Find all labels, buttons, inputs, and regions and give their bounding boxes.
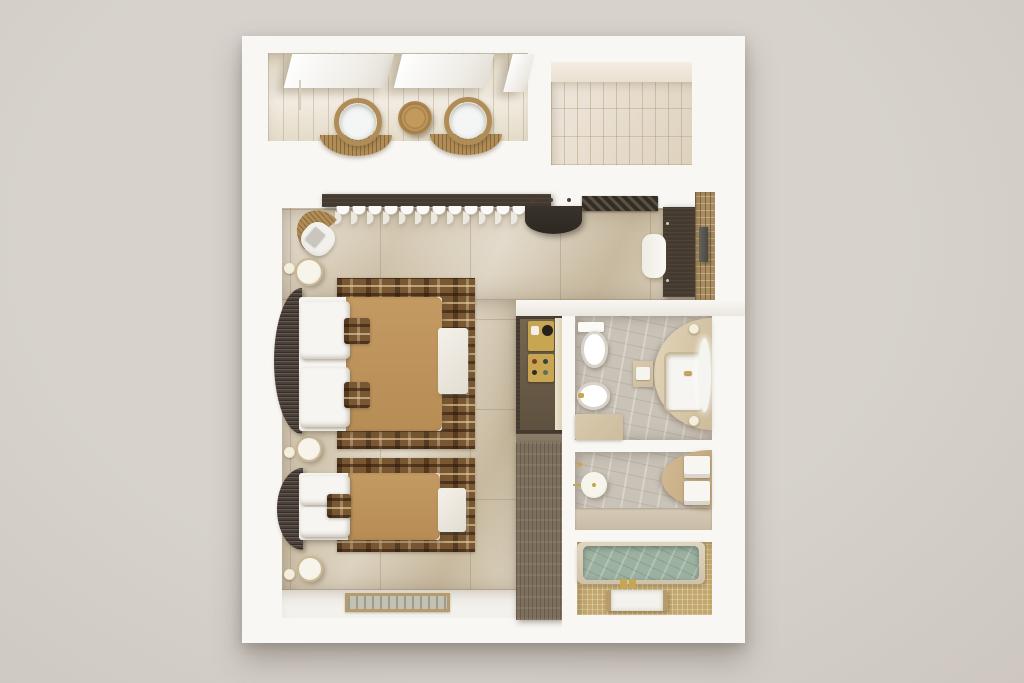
foot-bench <box>438 488 466 532</box>
papasan-chair-cushion <box>340 104 376 140</box>
wall-tv <box>699 227 708 262</box>
corner-armchair <box>292 210 342 260</box>
led-oval-mirror <box>698 338 711 412</box>
terrace-side-table <box>398 101 432 135</box>
bathroom-left-wall <box>562 316 575 630</box>
papasan-chair-cushion <box>450 103 486 139</box>
rain-shower-head <box>581 472 607 498</box>
travertine-bench <box>575 414 623 440</box>
accent-cushion <box>344 382 370 408</box>
bathroom-divider-wall <box>575 440 712 452</box>
bathroom-divider-wall <box>575 530 712 542</box>
bed-pillow <box>300 301 350 359</box>
wall-sconce <box>284 447 295 458</box>
wall-sconce <box>284 569 295 580</box>
towel-stack <box>684 481 710 505</box>
foot-bench <box>438 328 468 394</box>
nightstand <box>296 436 322 462</box>
minibar-tray <box>528 354 554 382</box>
single-bed <box>299 473 440 540</box>
wall-sconce <box>689 416 699 426</box>
wardrobe-unit <box>516 316 562 620</box>
bathtub-basin <box>583 546 699 580</box>
floorplan-render <box>0 0 1024 683</box>
coat-hooks <box>529 198 573 203</box>
hand-shower <box>577 462 582 467</box>
wall-sconce <box>284 263 295 274</box>
terrace-awning <box>394 54 494 88</box>
bath-tray <box>606 590 668 611</box>
double-bed <box>299 297 442 431</box>
desk-chair <box>642 234 666 278</box>
entry-striped-mat <box>582 196 658 211</box>
sheer-curtain <box>335 206 551 227</box>
half-round-console <box>525 206 582 234</box>
nightstand <box>295 258 323 286</box>
bed-pillow <box>300 367 350 427</box>
patio-tile-floor <box>551 82 692 165</box>
nightstand <box>297 556 323 582</box>
toilet <box>581 331 608 368</box>
kettle-tray <box>528 321 554 351</box>
entrance-doormat <box>345 593 450 612</box>
sink-faucet <box>684 371 692 375</box>
bidet-faucet <box>578 393 584 398</box>
terrace-railing-post <box>299 80 301 110</box>
accent-cushion <box>344 318 370 344</box>
wardrobe-shelf-edge <box>516 434 562 442</box>
shower-threshold <box>575 508 712 530</box>
wall-sconce <box>689 324 699 334</box>
wardrobe-lower-cabinet <box>516 442 562 620</box>
towel-stack <box>684 456 710 478</box>
bathtub-taps <box>619 576 637 590</box>
vanity-stool <box>633 361 653 387</box>
bathroom-top-wall <box>516 300 745 316</box>
duvet <box>348 473 440 540</box>
patio-wall-band <box>551 62 692 82</box>
accent-cushion <box>327 494 351 518</box>
desk <box>663 207 696 297</box>
